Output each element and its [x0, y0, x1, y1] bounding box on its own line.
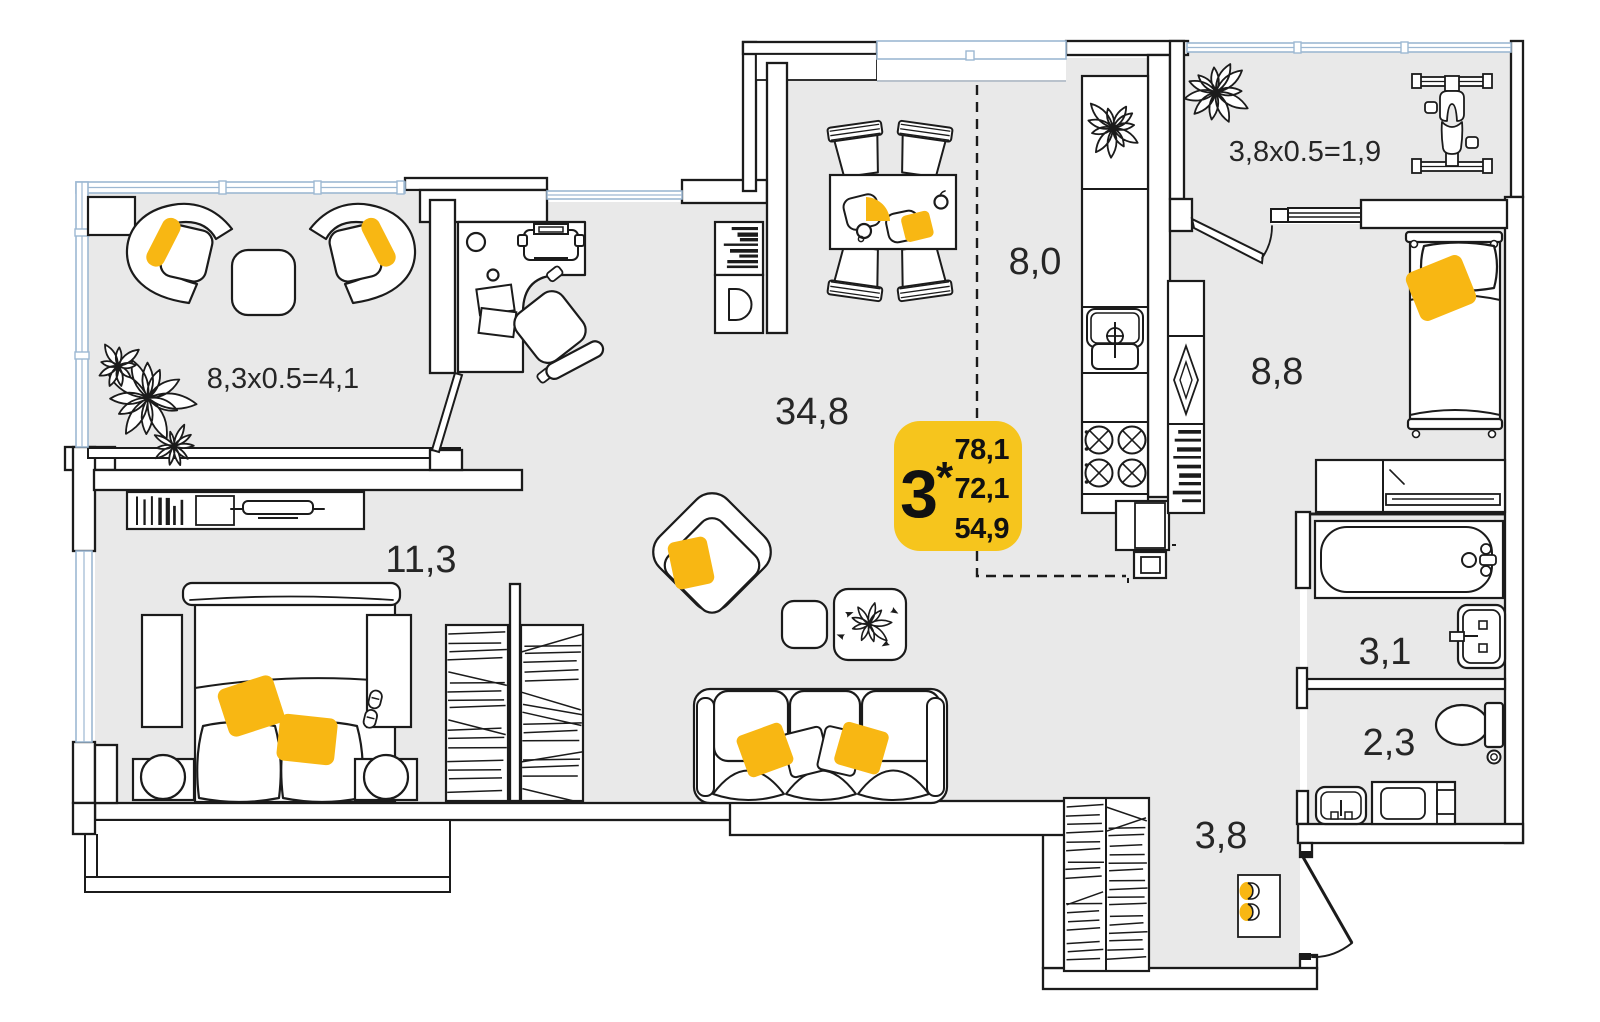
svg-text:3: 3 — [900, 456, 938, 532]
svg-text:11,3: 11,3 — [385, 539, 456, 581]
svg-text:8,8: 8,8 — [1251, 351, 1304, 393]
svg-text:3,8x0.5=1,9: 3,8x0.5=1,9 — [1229, 136, 1381, 168]
svg-text:*: * — [936, 453, 954, 502]
svg-text:2,3: 2,3 — [1363, 722, 1416, 764]
svg-text:54,9: 54,9 — [955, 513, 1010, 545]
svg-text:8,3x0.5=4,1: 8,3x0.5=4,1 — [207, 363, 359, 395]
svg-text:72,1: 72,1 — [955, 473, 1010, 505]
svg-text:78,1: 78,1 — [955, 434, 1010, 466]
svg-text:3,1: 3,1 — [1359, 631, 1412, 673]
svg-text:3,8: 3,8 — [1195, 815, 1248, 857]
svg-text:8,0: 8,0 — [1009, 241, 1062, 283]
svg-text:34,8: 34,8 — [775, 391, 849, 433]
